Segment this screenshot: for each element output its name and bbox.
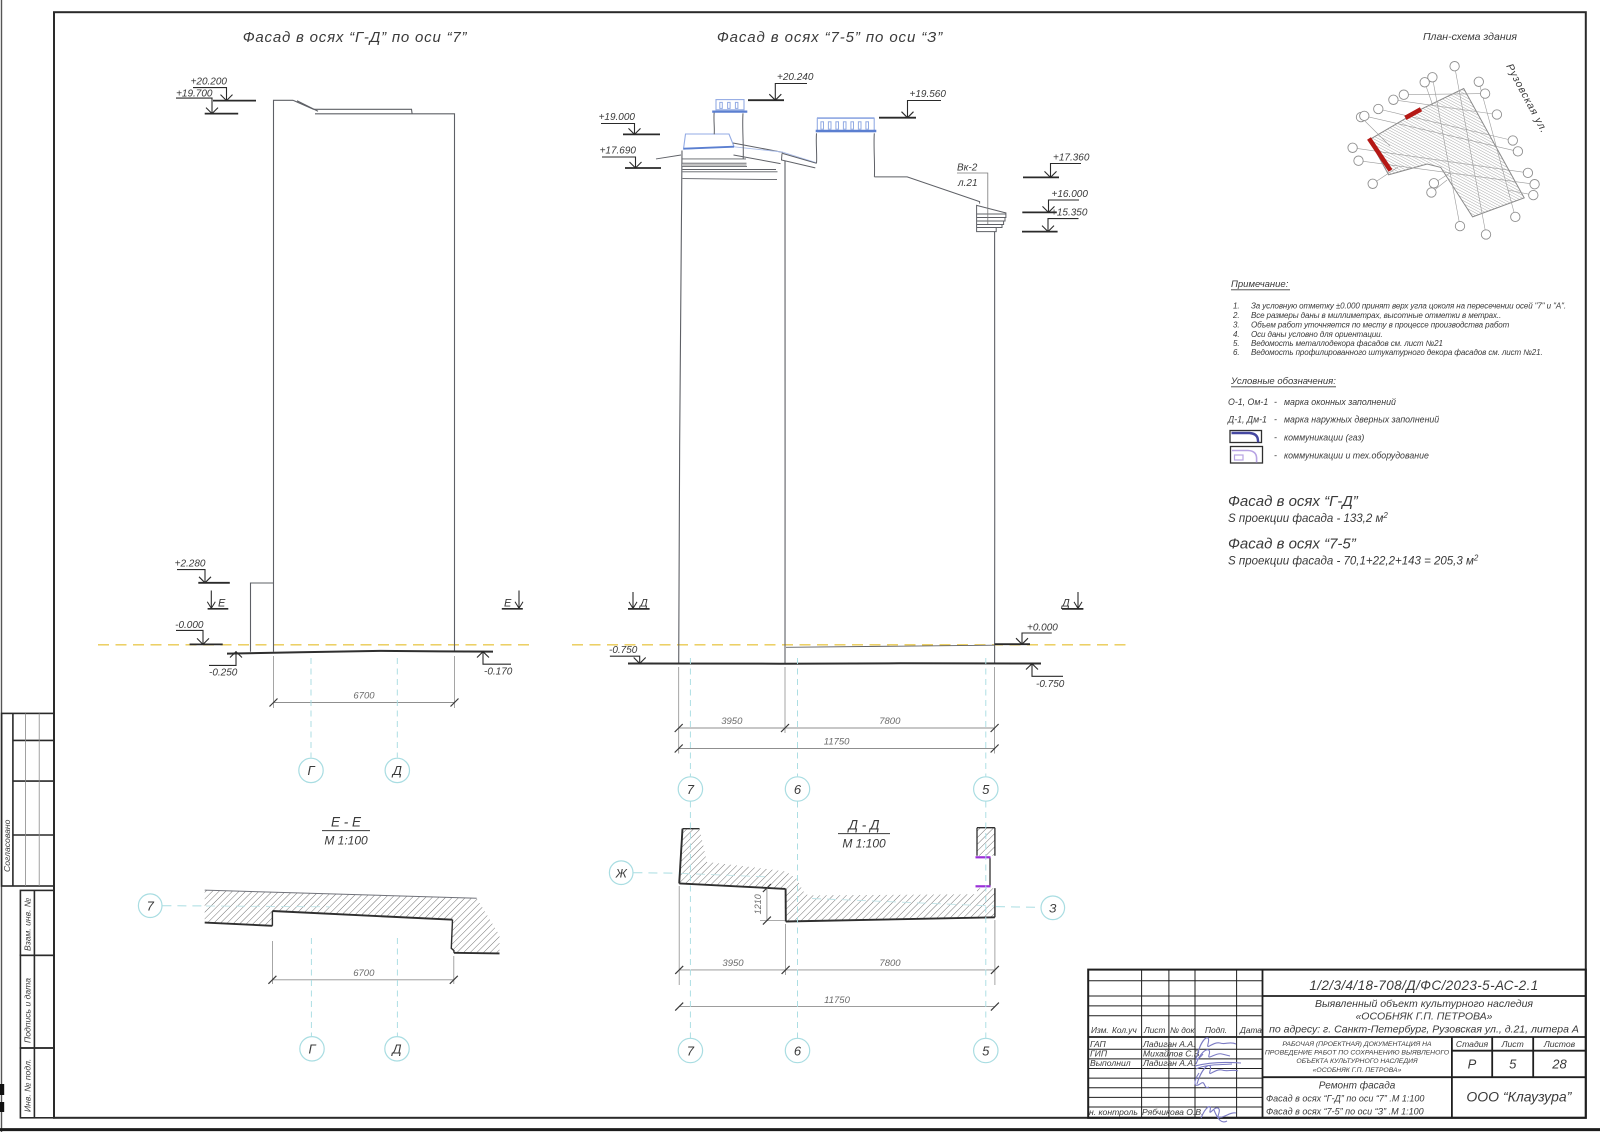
svg-text:3.: 3. [1233,321,1239,330]
svg-text:М 1:100: М 1:100 [324,834,368,848]
svg-text:Фасад в осях “Г-Д” по оси “7”: Фасад в осях “Г-Д” по оси “7” [243,29,468,46]
svg-text:-: - [1274,415,1277,425]
svg-text:7: 7 [687,782,695,797]
svg-text:1/2/3/4/18-708/Д/ФС/2023-5-АС-: 1/2/3/4/18-708/Д/ФС/2023-5-АС-2.1 [1309,978,1538,993]
svg-text:Ведомость профилированного шту: Ведомость профилированного штукатурного … [1251,348,1543,357]
svg-text:Д - Д: Д - Д [846,817,880,832]
svg-text:+20.200: +20.200 [191,77,228,88]
svg-text:6.: 6. [1233,348,1239,357]
svg-text:Согласовано: Согласовано [2,819,12,872]
svg-text:4.: 4. [1233,330,1239,339]
svg-text:Подпись и дата: Подпись и дата [23,978,33,1043]
svg-text:Выполнил: Выполнил [1090,1058,1131,1068]
svg-text:Ладиган А.А.: Ладиган А.А. [1142,1039,1195,1049]
svg-text:Объем работ уточняется по мест: Объем работ уточняется по месту в процес… [1251,321,1510,330]
svg-text:Подп.: Подп. [1205,1025,1227,1035]
svg-text:Стадия: Стадия [1456,1039,1489,1049]
svg-text:Е - Е: Е - Е [331,814,362,829]
svg-text:коммуникации (газ): коммуникации (газ) [1284,433,1364,443]
svg-text:+0.000: +0.000 [1027,623,1058,634]
svg-text:Д: Д [390,1042,401,1057]
svg-text:+16.000: +16.000 [1052,189,1089,200]
svg-text:-0.750: -0.750 [609,645,638,656]
svg-text:Е: Е [504,598,512,610]
svg-text:Р: Р [1468,1057,1477,1072]
svg-text:ГИП: ГИП [1090,1049,1108,1059]
svg-text:Фасад в осях “7-5” по оси “З”: Фасад в осях “7-5” по оси “З” [717,29,943,46]
svg-text:Взам. инв. №: Взам. инв. № [23,898,33,951]
svg-text:Лист: Лист [1501,1039,1524,1049]
svg-text:ООО “Клаузура”: ООО “Клаузура” [1466,1089,1572,1105]
svg-text:Вк-2: Вк-2 [957,163,978,174]
svg-text:3950: 3950 [722,958,744,969]
svg-text:+2.280: +2.280 [175,559,206,570]
svg-text:ОБЪЕКТА КУЛЬТУРНОГО НАСЛЕДИЯ: ОБЪЕКТА КУЛЬТУРНОГО НАСЛЕДИЯ [1296,1058,1418,1065]
svg-text:5: 5 [982,1043,990,1058]
svg-text:1.: 1. [1233,302,1239,311]
svg-text:+19.560: +19.560 [910,89,947,100]
svg-text:Е: Е [218,598,226,610]
svg-text:5.: 5. [1233,339,1239,348]
svg-text:7: 7 [147,898,155,913]
svg-text:6: 6 [794,1043,802,1058]
svg-text:№ док.: № док. [1170,1025,1197,1035]
svg-text:+19.000: +19.000 [599,112,636,123]
svg-text:Кол.уч: Кол.уч [1112,1025,1137,1035]
svg-text:Дата: Дата [1239,1025,1262,1035]
svg-text:коммуникации и тех.оборудова: коммуникации и тех.оборудование [1284,451,1429,461]
svg-text:л.21: л.21 [957,178,978,189]
svg-text:-0.750: -0.750 [1036,679,1065,690]
svg-text:Г: Г [307,763,315,778]
svg-text:Ремонт фасада: Ремонт фасада [1319,1080,1396,1092]
svg-text:«ОСОБНЯК Г.П. ПЕТРОВА»: «ОСОБНЯК Г.П. ПЕТРОВА» [1355,1011,1492,1023]
svg-text:«ОСОБНЯК Г.П. ПЕТРОВА»: «ОСОБНЯК Г.П. ПЕТРОВА» [1313,1067,1402,1074]
svg-text:+17.360: +17.360 [1053,153,1090,164]
svg-text:6700: 6700 [353,691,375,702]
svg-text:Д: Д [638,598,648,610]
svg-text:Выявленный объект культурного: Выявленный объект культурного наследия [1315,998,1533,1010]
svg-text:Ладиган А.А.: Ладиган А.А. [1142,1058,1195,1068]
svg-text:Фасад в осях “Г-Д” по оси: Фасад в осях “Г-Д” по оси “7” .М 1:100 [1266,1094,1424,1104]
svg-text:-: - [1274,397,1277,407]
svg-text:28: 28 [1551,1057,1567,1072]
svg-text:Д-1, Дм-1: Д-1, Дм-1 [1227,415,1267,425]
svg-text:6: 6 [794,782,802,797]
svg-text:марка оконных заполнений: марка оконных заполнений [1284,397,1396,407]
svg-text:Г: Г [308,1042,316,1057]
svg-text:Все размеры даны в миллиметрах: Все размеры даны в миллиметрах, высотные… [1251,311,1501,320]
svg-text:Оси даны условно для ориентаци: Оси даны условно для ориентации. [1251,330,1383,339]
svg-text:7800: 7800 [879,716,901,727]
svg-text:по адресу: г. Санкт-Петербург,: по адресу: г. Санкт-Петербург, Рузовская… [1269,1024,1579,1036]
svg-text:11750: 11750 [824,995,850,1006]
svg-text:Ведомость металлодекора фасадо: Ведомость металлодекора фасадов см. лист… [1251,339,1443,348]
svg-text:Д: Д [1060,598,1070,610]
svg-text:+20.240: +20.240 [777,72,814,83]
svg-text:-0.000: -0.000 [175,620,204,631]
svg-text:5: 5 [982,782,990,797]
svg-text:Михайлов С.В.: Михайлов С.В. [1143,1049,1202,1059]
svg-text:Условные обозначения:: Условные обозначения: [1230,376,1336,387]
svg-text:Фасад в осях “7-5” по оси: Фасад в осях “7-5” по оси “З” .М 1:100 [1266,1107,1424,1117]
svg-text:-0.250: -0.250 [209,667,238,678]
svg-text:2.: 2. [1232,311,1239,320]
svg-text:ПРОВЕДЕНИЕ РАБОТ ПО СОХРАНЕНИЮ: ПРОВЕДЕНИЕ РАБОТ ПО СОХРАНЕНИЮ ВЫЯВЛЕНОГ… [1265,1050,1450,1057]
svg-text:М 1:100: М 1:100 [842,837,886,851]
svg-text:-: - [1274,451,1277,461]
svg-text:За условную отметку ±0.000 при: За условную отметку ±0.000 принят верх у… [1251,302,1566,311]
svg-text:РАБОЧАЯ (ПРОЕКТНАЯ) ДОКУМЕНТАЦ: РАБОЧАЯ (ПРОЕКТНАЯ) ДОКУМЕНТАЦИЯ НА [1282,1041,1432,1048]
svg-text:О-1, Ом-1: О-1, Ом-1 [1228,397,1268,407]
svg-text:Листов: Листов [1543,1039,1576,1049]
svg-text:S проекции фасада - 70,1+22,2+: S проекции фасада - 70,1+22,2+143 = 205,… [1228,554,1479,568]
svg-text:11750: 11750 [824,737,850,748]
svg-text:Изм.: Изм. [1091,1025,1109,1035]
svg-text:План-схема здания: План-схема здания [1423,31,1517,43]
svg-text:5: 5 [1509,1057,1517,1072]
svg-text:Д: Д [391,763,402,778]
svg-text:марка наружных дверных заполне: марка наружных дверных заполнений [1284,415,1439,425]
svg-text:Инв. № подл.: Инв. № подл. [23,1059,33,1112]
svg-text:3950: 3950 [721,716,743,727]
svg-text:ГАП: ГАП [1090,1039,1107,1049]
svg-text:+15.350: +15.350 [1051,208,1088,219]
svg-text:7800: 7800 [879,958,901,969]
svg-text:З: З [1049,902,1057,916]
svg-text:Примечание:: Примечание: [1231,279,1289,290]
svg-text:Рябчикова О.В.: Рябчикова О.В. [1142,1107,1204,1117]
svg-text:Фасад в осях “7-5”: Фасад в осях “7-5” [1228,536,1357,553]
svg-text:-0.170: -0.170 [484,667,513,678]
svg-text:+17.690: +17.690 [600,146,637,157]
svg-text:7: 7 [687,1043,695,1058]
svg-text:Лист: Лист [1143,1025,1165,1035]
svg-text:S проекции фасада - 133,2 м2: S проекции фасада - 133,2 м2 [1228,511,1388,525]
svg-text:6700: 6700 [353,968,375,979]
svg-text:1210: 1210 [753,894,763,914]
svg-text:Ж: Ж [615,866,628,880]
svg-text:Фасад в осях “Г-Д”: Фасад в осях “Г-Д” [1228,493,1359,510]
svg-text:-: - [1274,433,1277,443]
svg-text:Рузовская ул.: Рузовская ул. [1503,62,1550,136]
svg-text:н. контроль: н. контроль [1089,1107,1138,1117]
